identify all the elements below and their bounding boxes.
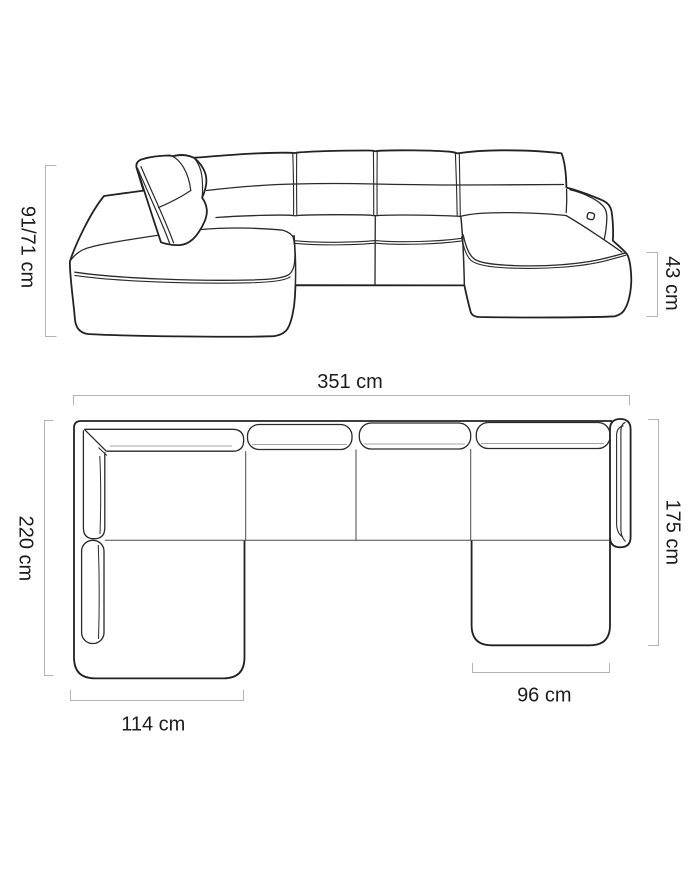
svg-text:351 cm: 351 cm <box>317 371 383 393</box>
svg-text:43 cm: 43 cm <box>661 256 683 310</box>
svg-text:220 cm: 220 cm <box>15 516 37 582</box>
svg-text:96 cm: 96 cm <box>517 685 571 707</box>
svg-text:175 cm: 175 cm <box>662 500 684 566</box>
svg-text:114 cm: 114 cm <box>121 714 185 736</box>
svg-text:91/71 cm: 91/71 cm <box>17 206 39 288</box>
